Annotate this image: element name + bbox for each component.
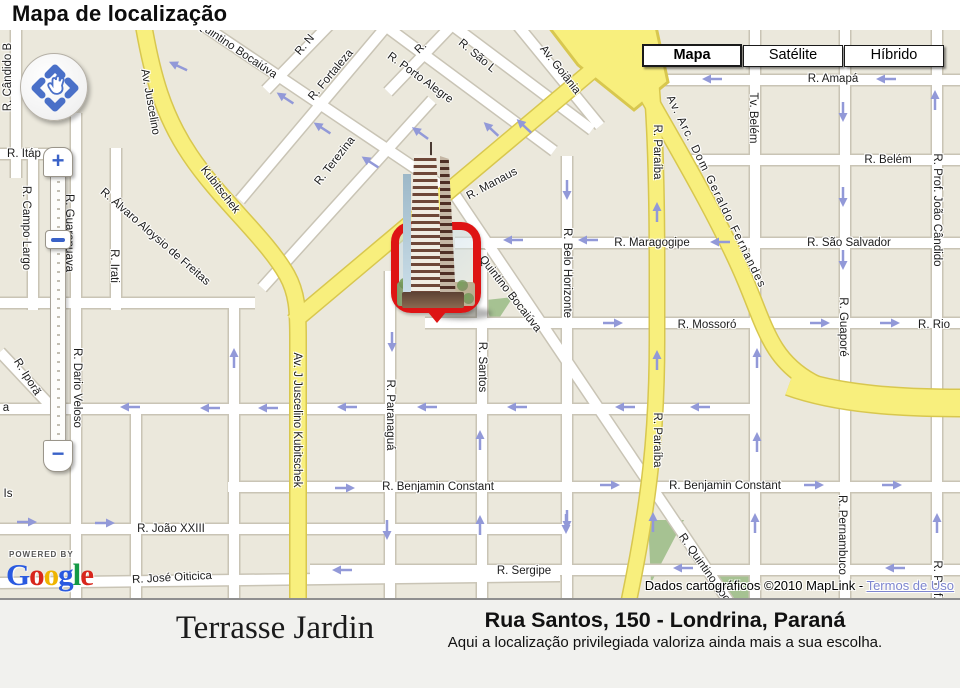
street-label: R. Paraíba: [651, 125, 663, 180]
tower-side-face: [440, 156, 456, 302]
street-label: R. Amapá: [808, 73, 859, 85]
street-label: R. Paranaguá: [384, 380, 396, 451]
street-label: R. Belo Horizonte: [561, 228, 573, 318]
pan-down-icon: [48, 101, 62, 108]
google-logo-letter: o: [44, 557, 59, 592]
google-logo-letter: g: [58, 557, 73, 592]
zoom-slider-track[interactable]: [50, 176, 66, 442]
copyright-text: Dados cartográficos ©2010 MapLink -: [645, 578, 863, 593]
pan-right-icon: [68, 81, 75, 95]
terms-link[interactable]: Termos de Uso: [867, 578, 954, 593]
pan-left-icon: [35, 81, 42, 95]
tower-glass-edge: [403, 174, 411, 302]
tower-podium: [402, 292, 464, 308]
tagline: Aqui a localização privilegiada valoriza…: [420, 634, 910, 651]
footer: Terrasse Jardin Rua Santos, 150 - Londri…: [0, 600, 960, 688]
street-label: R. Cândido B: [2, 43, 14, 111]
page: Mapa de localização: [0, 0, 960, 688]
page-title: Mapa de localização: [12, 1, 227, 27]
street-label: R. Guaporé: [837, 297, 849, 356]
google-logo-letter: o: [29, 557, 44, 592]
street-label: R. Sergipe: [497, 565, 551, 577]
street-label: R. Itáp: [7, 148, 41, 160]
street-label: Is: [4, 488, 13, 500]
street-label: R. Prof. João Cândido: [931, 153, 943, 266]
map-canvas[interactable]: R. Cândido BR. ItápR. Campo LargoR. Guar…: [0, 30, 960, 600]
street-label: Tv. Belém: [747, 93, 759, 144]
street-label: R. Rio: [918, 319, 950, 331]
zoom-in-button[interactable]: +: [43, 147, 73, 177]
building-name: Terrasse Jardin: [160, 610, 390, 647]
zoom-slider-handle[interactable]: [45, 230, 71, 249]
map-type-hibrido[interactable]: Híbrido: [844, 45, 944, 67]
map-type-switcher: Mapa Satélite Híbrido: [641, 45, 944, 67]
google-logo-letter: e: [80, 557, 93, 592]
pan-up-icon: [48, 68, 62, 75]
street-label: R. Maragogipe: [614, 237, 689, 249]
street-label: R. Dario Veloso: [71, 348, 83, 428]
tower-antenna: [430, 142, 432, 156]
hand-icon: [48, 76, 63, 94]
street-label: R. Mossoró: [678, 319, 737, 331]
street-label: R. Santos: [476, 342, 488, 393]
zoom-out-button[interactable]: −: [43, 440, 73, 472]
street-label: R. Campo Largo: [20, 186, 32, 270]
map-type-mapa[interactable]: Mapa: [642, 44, 742, 67]
building-illustration: [400, 146, 472, 312]
google-logo-letter: G: [6, 557, 29, 592]
street-label: R. Pernambuco: [836, 495, 848, 575]
street-label: R. Belém: [864, 154, 911, 166]
street-label: a: [3, 402, 9, 414]
google-logo[interactable]: Google: [6, 557, 93, 593]
pan-control[interactable]: [20, 53, 88, 121]
street-label: R. Benjamin Constant: [382, 481, 494, 493]
map-type-satelite[interactable]: Satélite: [743, 45, 843, 67]
street-label: Av. J Juscelino Kubitschek: [291, 352, 303, 487]
street-label: R. Irati: [108, 249, 120, 283]
street-label: R. João XXIII: [137, 523, 205, 535]
address: Rua Santos, 150 - Londrina, Paraná: [420, 608, 910, 633]
street-label: R. Benjamin Constant: [669, 480, 781, 492]
address-block: Rua Santos, 150 - Londrina, Paraná Aqui …: [420, 608, 910, 651]
street-label: R. Paraíba: [651, 413, 663, 468]
street-label: R. São Salvador: [807, 237, 891, 249]
map-copyright: Dados cartográficos ©2010 MapLink - Term…: [645, 578, 954, 593]
